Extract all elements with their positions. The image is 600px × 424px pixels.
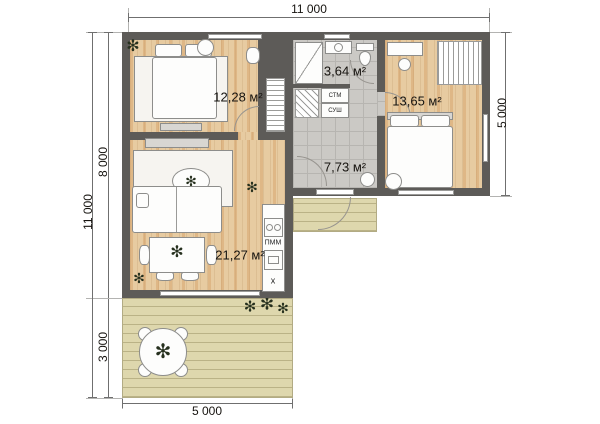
fridge-inner — [268, 256, 279, 264]
hall-area-label: 7,73 м² — [324, 160, 366, 175]
bedroom2-pouf — [385, 173, 402, 190]
armchair — [246, 47, 260, 64]
dim-label-left-lower: 3 000 — [96, 332, 110, 362]
dimension-tick — [103, 298, 113, 299]
window — [483, 114, 488, 162]
bedroom1-pouf — [197, 39, 214, 56]
plant-icon: ✻ — [155, 342, 172, 362]
bathroom-area-label: 3,64 м² — [324, 64, 366, 79]
corridor-closet — [295, 89, 319, 118]
plant-icon: ✻ — [133, 271, 145, 285]
dim-label-bottom: 5 000 — [192, 404, 222, 418]
bedroom2-area-label: 13,65 м² — [392, 94, 441, 109]
wardrobe — [437, 41, 482, 85]
stove-burner — [266, 224, 273, 231]
toilet-tank — [356, 43, 374, 51]
sink-mark-label: х — [271, 277, 276, 286]
bed1-pillow — [155, 44, 182, 57]
dim-label-left-upper: 8 000 — [96, 147, 110, 177]
dim-label-top: 11 000 — [291, 2, 327, 16]
plant-icon: ✻ — [246, 180, 258, 194]
window — [160, 291, 260, 296]
bedroom1-area-label: 12,28 м² — [213, 90, 262, 105]
stove-burner — [274, 224, 281, 231]
plant-icon: ✻ — [126, 39, 139, 55]
dishwasher-label: ПММ — [265, 240, 282, 247]
sofa-cushion-line — [176, 187, 177, 232]
dim-label-left-outer: 11 000 — [81, 194, 95, 230]
bedroom2-door-opening — [377, 92, 385, 116]
extension-line — [490, 196, 512, 197]
front-door — [316, 189, 354, 195]
extension-line — [86, 398, 122, 399]
window — [324, 34, 350, 39]
washbasin — [334, 43, 343, 52]
washer-label: СТМ — [329, 93, 342, 99]
floor-plan: 11 000 11 000 8 000 3 000 5 000 5 000 ✻ … — [0, 0, 600, 424]
desk — [387, 42, 423, 56]
tv-console — [145, 138, 209, 148]
plant-icon: ✻ — [260, 296, 274, 313]
bedroom1-door-opening — [238, 132, 258, 140]
bed1-duvet — [152, 57, 217, 119]
sofa-pillow — [136, 193, 149, 208]
dimension-line-top — [128, 17, 490, 18]
dryer-label: СУШ — [328, 108, 341, 114]
dresser — [160, 123, 202, 131]
living-room-area-label: 21,27 м² — [215, 248, 264, 263]
plant-icon: ✻ — [244, 300, 257, 315]
window — [208, 34, 262, 39]
dim-label-right: 5 000 — [495, 98, 509, 128]
plant-icon: ✻ — [170, 245, 183, 261]
desk-chair — [398, 58, 411, 71]
plant-icon: ✻ — [277, 301, 289, 315]
hall-closet — [266, 78, 285, 132]
shower — [295, 42, 323, 84]
window — [398, 190, 454, 195]
